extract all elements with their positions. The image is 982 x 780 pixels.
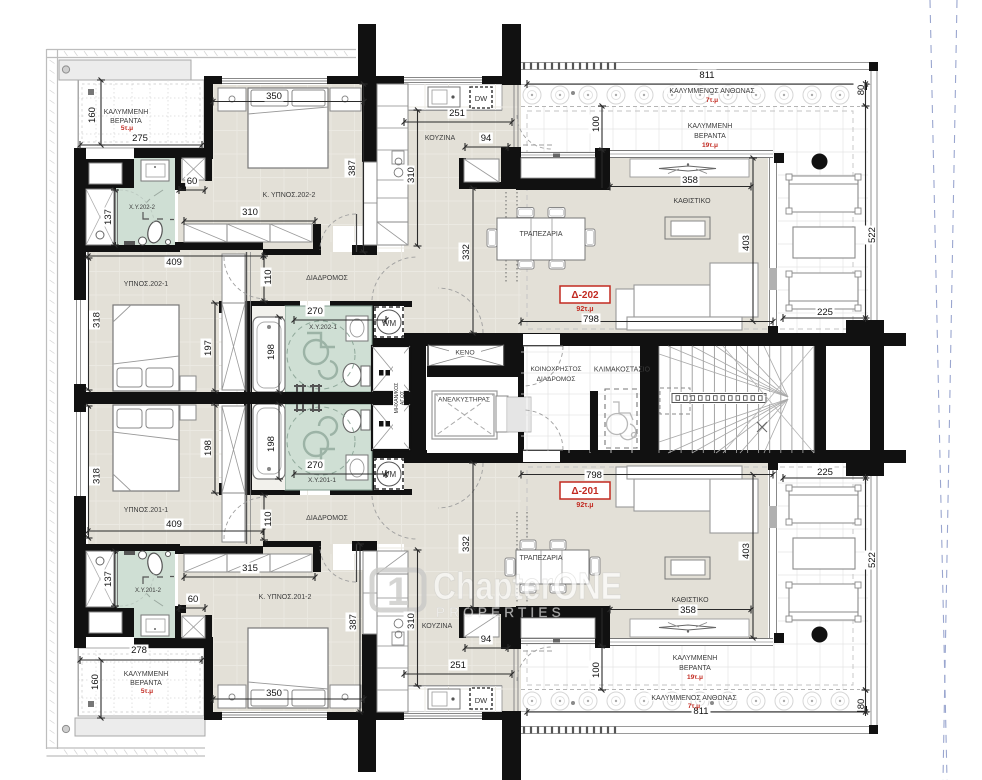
svg-text:198: 198 [203, 440, 214, 456]
svg-text:ΚΑΛΥΜΜΕΝΗ: ΚΑΛΥΜΜΕΝΗ [688, 123, 733, 130]
svg-text:ΥΠΝΟΣ.202-1: ΥΠΝΟΣ.202-1 [124, 281, 169, 288]
svg-text:318: 318 [91, 312, 102, 328]
svg-text:350: 350 [266, 91, 282, 102]
svg-text:ΒΕΡΑΝΤΑ: ΒΕΡΑΝΤΑ [694, 133, 726, 140]
svg-text:WM: WM [382, 470, 397, 479]
svg-text:ΚΕΝΟ: ΚΕΝΟ [455, 350, 474, 357]
svg-text:110: 110 [263, 269, 274, 284]
svg-text:ΚΑΛΥΜΜΕΝΟΣ ΑΝΘΩΝΑΣ: ΚΑΛΥΜΜΕΝΟΣ ΑΝΘΩΝΑΣ [651, 695, 737, 702]
svg-text:137: 137 [103, 209, 114, 225]
svg-text:ΚΟΥΖΙΝΑ: ΚΟΥΖΙΝΑ [422, 623, 453, 630]
svg-text:Δ-201: Δ-201 [571, 486, 599, 497]
svg-text:60: 60 [188, 594, 199, 605]
svg-text:275: 275 [132, 133, 148, 144]
svg-text:ΚΛΙΜΑΚΟΣΤΑΣΙΟ: ΚΛΙΜΑΚΟΣΤΑΣΙΟ [594, 367, 651, 374]
svg-text:ΒΕΡΑΝΤΑ: ΒΕΡΑΝΤΑ [679, 665, 711, 672]
svg-text:Χ.Υ.202-2: Χ.Υ.202-2 [129, 205, 156, 211]
svg-text:PROPERTIES: PROPERTIES [436, 605, 565, 620]
svg-text:160: 160 [87, 107, 98, 123]
svg-text:ΚΑΛΥΜΜΕΝΗ: ΚΑΛΥΜΜΕΝΗ [124, 671, 169, 678]
svg-text:403: 403 [741, 543, 752, 559]
svg-text:ΚΟΙΝΟΧΡΗΣΤΟΣ: ΚΟΙΝΟΧΡΗΣΤΟΣ [530, 366, 581, 373]
svg-text:92τ.μ: 92τ.μ [576, 306, 593, 313]
svg-text:310: 310 [406, 167, 417, 183]
svg-text:251: 251 [449, 108, 465, 119]
svg-text:315: 315 [242, 563, 258, 574]
svg-text:Κ. ΥΠΝΟΣ.201-2: Κ. ΥΠΝΟΣ.201-2 [259, 594, 312, 601]
svg-text:7τ.μ: 7τ.μ [706, 97, 718, 104]
svg-text:WM: WM [382, 319, 397, 328]
svg-text:270: 270 [307, 306, 323, 317]
svg-text:387: 387 [348, 614, 359, 630]
svg-text:387: 387 [347, 160, 358, 176]
svg-text:ΤΡΑΠΕΖΑΡΙΑ: ΤΡΑΠΕΖΑΡΙΑ [519, 231, 562, 238]
svg-text:ΑΓ.ΩΣ: ΑΓ.ΩΣ [400, 391, 406, 405]
svg-text:80: 80 [856, 699, 867, 710]
svg-text:ChapterONE: ChapterONE [433, 566, 622, 608]
svg-text:ΚΑΛΥΜΜΕΝΗ: ΚΑΛΥΜΜΕΝΗ [104, 109, 149, 116]
svg-text:160: 160 [90, 674, 101, 690]
svg-text:ΚΑΛΥΜΜΕΝΗ: ΚΑΛΥΜΜΕΝΗ [673, 655, 718, 662]
svg-text:332: 332 [461, 536, 472, 552]
svg-text:Χ.Υ.201-1: Χ.Υ.201-1 [308, 477, 336, 484]
svg-text:198: 198 [266, 436, 277, 452]
svg-text:522: 522 [867, 227, 878, 243]
svg-text:358: 358 [682, 175, 698, 186]
svg-text:5τ.μ: 5τ.μ [141, 688, 153, 695]
svg-text:ΑΝΕΛΚΥΣΤΗΡΑΣ: ΑΝΕΛΚΥΣΤΗΡΑΣ [438, 397, 490, 404]
svg-text:251: 251 [450, 660, 466, 671]
svg-text:80: 80 [856, 85, 867, 96]
svg-text:ΚΟΥΖΙΝΑ: ΚΟΥΖΙΝΑ [425, 135, 456, 142]
svg-text:Κ. ΥΠΝΟΣ.202-2: Κ. ΥΠΝΟΣ.202-2 [263, 192, 316, 199]
svg-text:1: 1 [387, 570, 409, 614]
svg-text:19τ.μ: 19τ.μ [687, 674, 703, 681]
svg-text:198: 198 [266, 344, 277, 360]
svg-text:358: 358 [680, 605, 696, 616]
svg-text:94: 94 [481, 133, 492, 144]
svg-text:Δ-202: Δ-202 [571, 290, 599, 301]
svg-text:ΚΑΘΙΣΤΙΚΟ: ΚΑΘΙΣΤΙΚΟ [671, 597, 709, 604]
svg-text:ΥΠΝΟΣ.201-1: ΥΠΝΟΣ.201-1 [124, 507, 169, 514]
svg-text:ΤΡΑΠΕΖΑΡΙΑ: ΤΡΑΠΕΖΑΡΙΑ [519, 555, 562, 562]
svg-text:ΔΙΑΔΡΟΜΟΣ: ΔΙΑΔΡΟΜΟΣ [306, 275, 348, 282]
svg-text:ΔΙΑΔΡΟΜΟΣ: ΔΙΑΔΡΟΜΟΣ [306, 515, 348, 522]
svg-text:403: 403 [741, 235, 752, 251]
svg-text:DW: DW [475, 696, 488, 705]
svg-text:409: 409 [166, 257, 182, 268]
svg-text:318: 318 [91, 468, 102, 484]
svg-text:350: 350 [266, 688, 282, 699]
svg-text:811: 811 [699, 70, 714, 81]
svg-text:7τ.μ: 7τ.μ [688, 703, 700, 710]
svg-text:19τ.μ: 19τ.μ [702, 142, 718, 149]
svg-text:137: 137 [103, 571, 114, 587]
svg-text:100: 100 [591, 116, 602, 132]
svg-text:197: 197 [203, 340, 214, 356]
svg-text:270: 270 [307, 460, 323, 471]
svg-text:332: 332 [461, 244, 472, 260]
svg-text:409: 409 [166, 519, 182, 530]
svg-text:310: 310 [242, 207, 258, 218]
svg-text:ΒΕΡΑΝΤΑ: ΒΕΡΑΝΤΑ [110, 118, 142, 125]
svg-text:278: 278 [131, 645, 147, 656]
svg-text:ΔΙΑΔΡΟΜΟΣ: ΔΙΑΔΡΟΜΟΣ [537, 376, 576, 383]
svg-text:798: 798 [586, 470, 602, 481]
svg-text:DW: DW [475, 94, 488, 103]
svg-text:Χ.Υ.202-1: Χ.Υ.202-1 [309, 324, 337, 331]
svg-text:225: 225 [817, 467, 833, 478]
svg-text:310: 310 [406, 613, 417, 629]
svg-text:100: 100 [591, 662, 602, 678]
svg-text:225: 225 [817, 307, 833, 318]
svg-text:5τ.μ: 5τ.μ [121, 125, 133, 132]
svg-text:Χ.Υ.201-2: Χ.Υ.201-2 [135, 588, 162, 594]
svg-text:ΚΑΛΥΜΜΕΝΟΣ ΑΝΘΩΝΑΣ: ΚΑΛΥΜΜΕΝΟΣ ΑΝΘΩΝΑΣ [669, 88, 755, 95]
svg-text:ΚΑΘΙΣΤΙΚΟ: ΚΑΘΙΣΤΙΚΟ [673, 198, 711, 205]
svg-text:ΒΕΡΑΝΤΑ: ΒΕΡΑΝΤΑ [130, 680, 162, 687]
svg-text:798: 798 [583, 314, 599, 325]
svg-text:92τ.μ: 92τ.μ [576, 502, 593, 509]
svg-text:522: 522 [867, 552, 878, 568]
svg-text:110: 110 [263, 511, 274, 526]
svg-text:94: 94 [481, 634, 492, 645]
svg-text:60: 60 [187, 176, 198, 187]
